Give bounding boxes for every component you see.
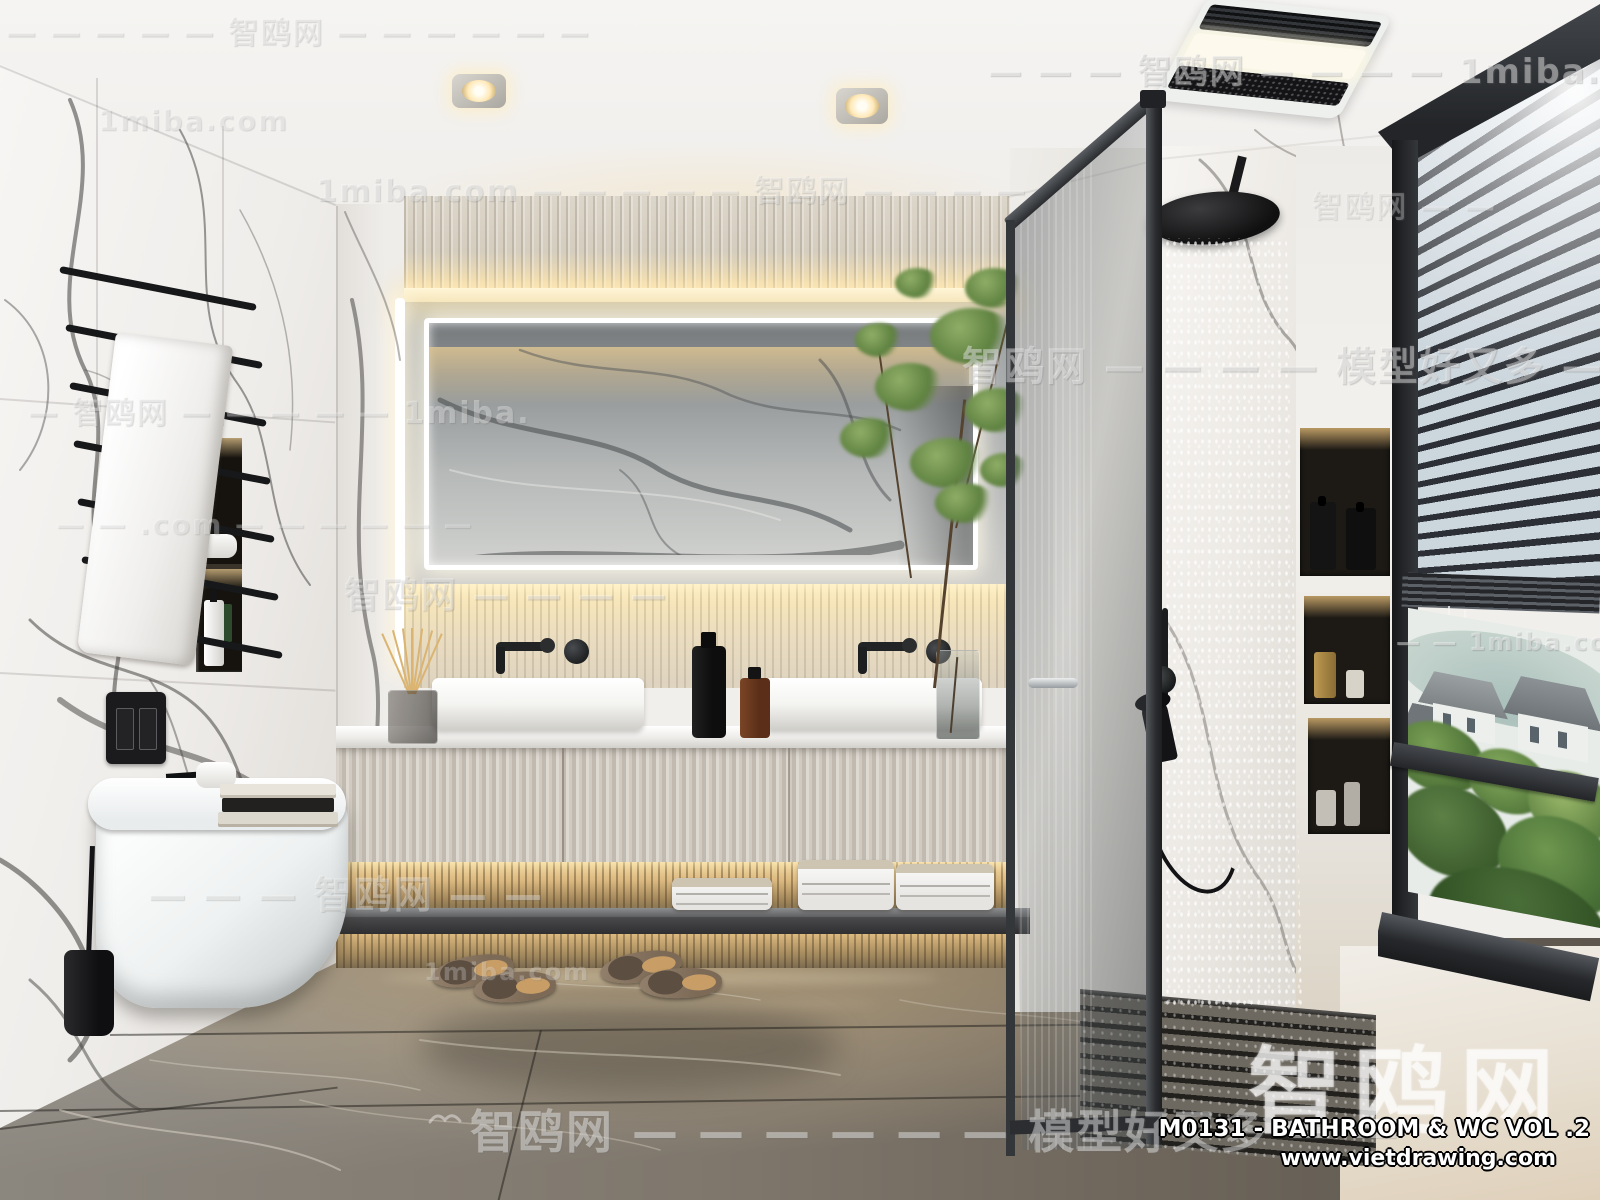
foliage: [840, 418, 898, 458]
slipper-insole: [682, 974, 717, 991]
house-window: [1530, 726, 1539, 744]
model-id-text: M0131 - BATHROOM & WC VOL .2: [1159, 1116, 1590, 1142]
window: [1378, 0, 1600, 1014]
pump-top: [1318, 496, 1326, 506]
watermark-site: 1miba.com: [98, 104, 289, 137]
foliage: [875, 363, 945, 411]
house-window: [1467, 717, 1475, 733]
downlight-bulb: [845, 94, 878, 117]
niche-light: [1300, 428, 1390, 450]
wall-faucet-left: [496, 634, 596, 680]
gold-bottle: [1314, 652, 1336, 698]
flush-button: [116, 708, 134, 750]
toilet-brush-holder: [64, 950, 114, 1036]
book: [220, 784, 336, 798]
window-sill-frame: [1378, 912, 1599, 1001]
downlight-bulb: [462, 80, 497, 102]
shower-glass-panel: [1006, 96, 1162, 1152]
glass-bottle: [1344, 782, 1360, 826]
amber-bottle: [740, 678, 770, 738]
glass-jar: [1316, 790, 1336, 826]
ceiling-downlight-left: [452, 74, 506, 108]
vessel-sink-left: [432, 678, 644, 730]
spray-nozzle: [701, 632, 716, 648]
foliage: [855, 323, 903, 357]
book: [218, 812, 338, 827]
faucet-spout-tip: [496, 647, 505, 674]
watermark-band: 1miba.com — — — — — 智鸥网 — — — —: [316, 166, 1028, 210]
pump-top: [1356, 502, 1364, 512]
foliage: [935, 483, 995, 523]
raised-blind-stack: [1401, 573, 1600, 614]
glass-right-frame: [1146, 92, 1162, 1144]
watermark-band: 智鸥网 — — — —: [344, 566, 668, 618]
black-pump-bottle: [1346, 508, 1376, 570]
watermark-band: — — — 智鸥网 — — — — 1miba.: [988, 44, 1600, 93]
diffuser-glass-vase: [388, 690, 438, 744]
black-spray-bottle: [692, 646, 726, 738]
folded-towel-stack: [896, 864, 994, 910]
folded-towel: [672, 878, 772, 910]
folded-towel-stack: [798, 860, 894, 910]
book: [222, 798, 334, 812]
foliage: [895, 268, 939, 298]
black-pump-bottle: [1310, 502, 1336, 570]
bird-icon: [428, 1108, 462, 1130]
watermark-band: — — .com — — — — — —: [56, 508, 474, 541]
ceiling-downlight-right: [836, 88, 888, 124]
flush-button: [139, 708, 157, 750]
watermark-band: — 智鸥网 — — — — — 1miba.: [28, 388, 531, 432]
watermark-band: 智鸥网 — —: [1312, 182, 1497, 226]
slipper-strap: [648, 970, 685, 995]
watermark-band: — — 1miba.com: [1396, 628, 1600, 656]
cabinet-seam: [788, 748, 790, 862]
foliage: [910, 438, 986, 488]
bottle-cap: [748, 667, 761, 679]
faucet-handle: [564, 639, 589, 664]
toilet-shadow: [420, 1002, 840, 1092]
toilet-flush-plate: [106, 692, 166, 764]
small-jar: [1346, 670, 1364, 698]
website-text: www.vietdrawing.com: [1281, 1146, 1556, 1171]
watermark-band: — — — — — 智鸥网 — — — — — —: [6, 8, 591, 52]
shower-niche-upper: [1300, 428, 1390, 576]
fluted-vanity-cabinet: [336, 748, 1012, 862]
bathroom-render: — — — — — 智鸥网 — — — — — — — — — 智鸥网 — — …: [0, 0, 1600, 1200]
faucet-flange: [540, 638, 555, 653]
house-window: [1558, 731, 1567, 749]
watermark-band: — — — 智鸥网 — —: [148, 864, 544, 919]
cabinet-seam: [562, 748, 564, 862]
glass-door-handle: [1028, 678, 1078, 688]
watermark-band: 智鸥网 — — — — 模型好又多 — —: [962, 334, 1600, 392]
watermark-site: 1miba.com: [424, 958, 590, 986]
